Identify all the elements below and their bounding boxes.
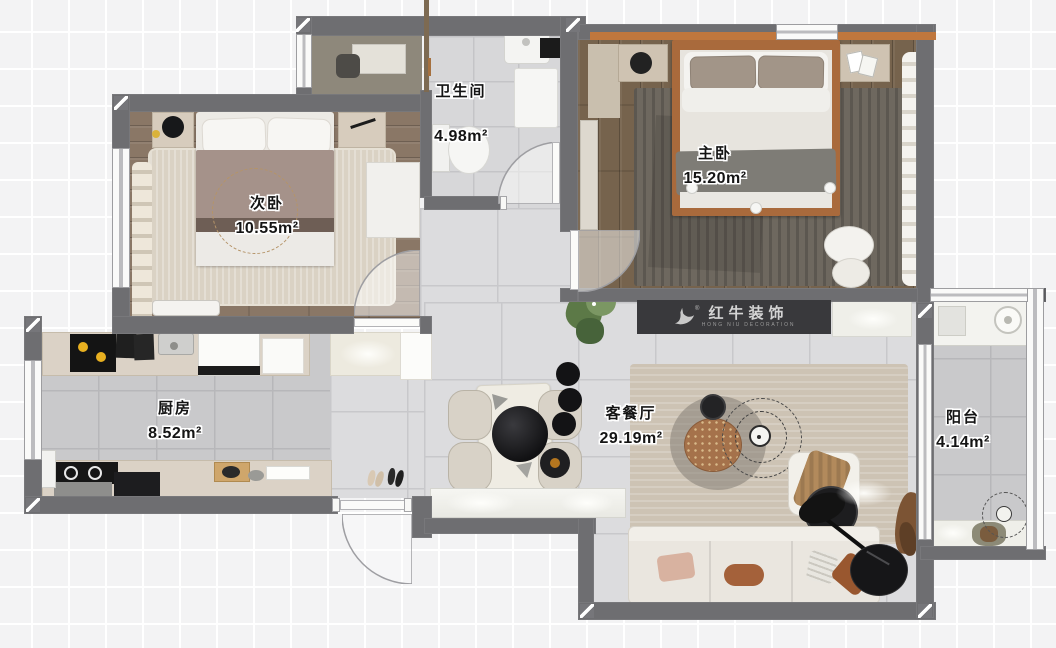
kitchen-stove-flame2: [96, 352, 106, 362]
room-label-kitchen: 厨房 8.52m²: [120, 397, 230, 443]
kitchen-burner1: [64, 466, 78, 480]
headboard-wood-strip: [590, 32, 936, 40]
second-nightstand-decor-yellow: [152, 130, 160, 138]
kitchen-board-black2: [134, 334, 155, 361]
living-dining-area: 29.19m²: [576, 430, 686, 448]
side-table-black: [700, 394, 726, 420]
second-desk: [366, 162, 420, 238]
master-bed-dot-center: [750, 202, 762, 214]
corridor-cabinet-white: [400, 332, 432, 380]
side-stool-center: [550, 458, 560, 468]
corner-mark-2: [566, 18, 580, 32]
room-label-balcony: 阳台 4.14m²: [908, 406, 1018, 452]
watermark-hongniu: ® 红牛装饰 HONG NIU DECORATION: [637, 300, 831, 334]
corner-mark-5: [26, 498, 40, 512]
second-nightstand-right: [338, 112, 386, 148]
kitchen-tray: [266, 466, 310, 480]
master-nightstand-left-decor: [630, 52, 652, 74]
glow-balcony-bench: [936, 524, 970, 542]
dining-chair-2: [448, 442, 492, 492]
registered-mark: ®: [695, 306, 699, 312]
sliding-divider-strip: [424, 0, 429, 92]
bathroom-basin-faucet: [522, 38, 530, 46]
window-secondbed-left: [112, 148, 130, 288]
mat-master-left: [588, 44, 620, 118]
study-chair: [336, 54, 360, 78]
master-pillow-left: [690, 55, 757, 90]
entry-door-jamb-left: [332, 498, 340, 512]
room-label-master-bedroom: 主卧 15.20m²: [660, 142, 770, 188]
second-bedroom-name: 次卧: [212, 192, 322, 213]
corner-mark-4: [26, 318, 40, 332]
second-curtain: [132, 162, 152, 330]
study-desk: [352, 44, 406, 74]
balcony-fan-hub: [996, 506, 1012, 522]
window-kitchen-left: [24, 360, 42, 460]
corner-mark-6: [918, 604, 932, 618]
wall-top-center: [296, 16, 586, 36]
washing-machine: [994, 306, 1022, 334]
watermark-brand-text: 红牛装饰: [708, 306, 788, 321]
wall-living-southwest: [424, 518, 596, 534]
master-door-arc: [578, 230, 640, 292]
watermark-subtitle-text: HONG NIU DECORATION: [702, 323, 796, 328]
second-low-cabinet: [152, 300, 220, 316]
corner-mark-1: [296, 18, 310, 32]
wall-master-right: [916, 24, 934, 306]
kitchen-sink-faucet: [170, 342, 178, 350]
balcony-name: 阳台: [908, 406, 1018, 427]
glow-tv-cabinet: [848, 308, 898, 330]
secondbed-door-leaf: [354, 318, 420, 327]
balcony-area: 4.14m²: [908, 434, 1018, 452]
window-master-top: [776, 24, 838, 40]
master-bedroom-name: 主卧: [660, 142, 770, 163]
sliding-divider-handle: [428, 58, 431, 76]
kitchen-bowl-dark: [222, 466, 240, 478]
kitchen-cabinet-white: [262, 338, 304, 374]
master-bed-dot-right: [824, 182, 836, 194]
master-pouf: [832, 258, 870, 288]
kitchen-fridge-handle: [198, 366, 260, 375]
corner-mark-8: [918, 304, 932, 318]
pendant-trio-1: [556, 362, 580, 386]
kitchen-burner2: [88, 466, 102, 480]
glow-sideboard-right: [560, 492, 614, 514]
hongniu-bull-logo-icon: [673, 306, 695, 328]
window-balcony-top: [930, 288, 1028, 302]
kitchen-tall-unit: [40, 450, 56, 488]
secondbed-door-arc: [354, 250, 420, 316]
kitchen-stove: [70, 334, 116, 372]
entry-door-arc: [342, 514, 412, 584]
plant-hall-flower2: [592, 302, 596, 306]
sofa-pillow-pink: [656, 552, 695, 583]
bathroom-shower-panel: [514, 68, 558, 128]
plant-hall-blob3: [576, 318, 604, 344]
wall-secondbed-bottom: [112, 316, 354, 334]
kitchen-oven: [114, 472, 160, 498]
dining-chair-1: [448, 390, 492, 440]
master-door-leaf: [570, 230, 579, 290]
master-bed-fold: [682, 88, 830, 112]
ceiling-fan-dot: [757, 435, 761, 439]
bathroom-door-leaf: [552, 142, 560, 204]
corner-mark-7: [580, 604, 594, 618]
kitchen-stove-flame1: [78, 342, 88, 352]
bathroom-door-arc: [498, 142, 560, 204]
window-balcony-right: [1026, 288, 1044, 550]
bathroom-area: 4.98m²: [406, 128, 516, 146]
living-dining-name: 客餐厅: [576, 402, 686, 423]
second-nightstand-lamp: [162, 116, 184, 138]
bathroom-black-box: [540, 38, 560, 58]
wall-kitchen-bottom: [24, 496, 338, 514]
sofa-pillow-rust: [724, 564, 764, 586]
second-bedroom-area: 10.55m²: [212, 220, 322, 238]
side-table-marble-vein: [866, 551, 890, 566]
glow-corridor-cabinet: [340, 340, 396, 368]
pendant-trio-3: [552, 412, 576, 436]
floor-plan-canvas: ® 红牛装饰 HONG NIU DECORATION 卫生间 4.98m² 主卧…: [0, 0, 1056, 648]
glow-armchair: [836, 480, 892, 506]
room-label-living-dining: 客餐厅 29.19m²: [576, 402, 686, 448]
wall-living-bottom: [578, 602, 936, 620]
entry-door-leaf: [340, 500, 412, 510]
corner-mark-3: [114, 96, 128, 110]
glow-sideboard-left: [446, 492, 516, 514]
balcony-fan-decor: [982, 492, 1028, 538]
room-label-bathroom: 卫生间 4.98m²: [406, 80, 516, 146]
balcony-cabinet-box: [938, 306, 966, 336]
wall-master-west: [560, 16, 578, 232]
room-label-second-bedroom: 次卧 10.55m²: [212, 192, 322, 238]
kitchen-name: 厨房: [120, 397, 230, 418]
wall-bathroom-south: [424, 196, 506, 210]
wall-secondbed-bottom-stub: [420, 316, 432, 334]
window-study-left: [296, 34, 312, 88]
wall-secondbed-top: [112, 94, 432, 112]
kitchen-area: 8.52m²: [120, 425, 230, 443]
dining-pendant-lamp: [492, 406, 548, 462]
bathroom-name: 卫生间: [406, 80, 516, 101]
wall-master-west-stub: [560, 288, 578, 302]
kitchen-bowl-gray: [248, 470, 264, 481]
entry-door-jamb-right: [404, 498, 412, 512]
master-pillow-right: [758, 55, 825, 90]
bathroom-door-jamb: [500, 196, 507, 210]
washing-machine-drum: [1004, 316, 1012, 324]
wardrobe-master: [580, 120, 598, 230]
master-bedroom-area: 15.20m²: [660, 170, 770, 188]
